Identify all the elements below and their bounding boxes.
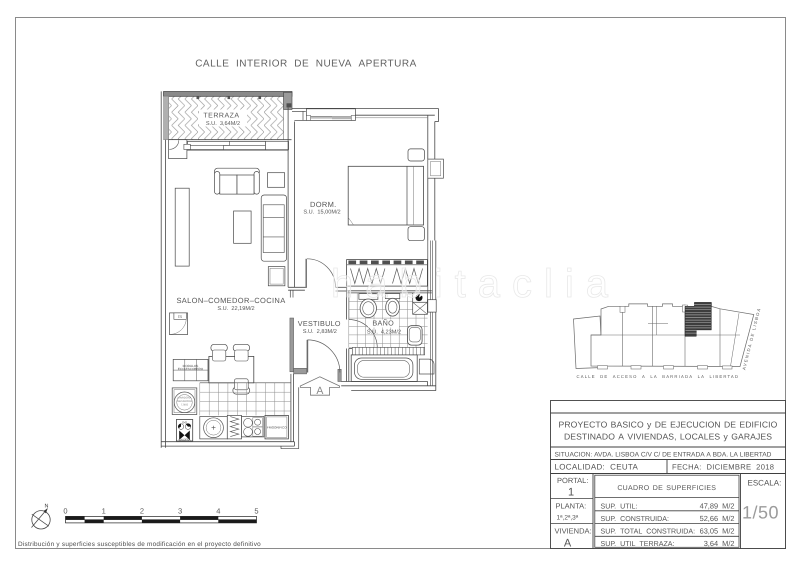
svg-text:DORM.: DORM. [310, 200, 337, 209]
svg-text:5: 5 [254, 507, 258, 516]
svg-text:SITUACION: AVDA. LISBOA C/V C/: SITUACION: AVDA. LISBOA C/V C/ DE ENTRAD… [555, 452, 772, 459]
svg-text:S.U. 15,00M/2: S.U. 15,00M/2 [303, 209, 340, 216]
svg-text:VIVIENDA:: VIVIENDA: [555, 527, 592, 536]
svg-text:63,05 M/2: 63,05 M/2 [700, 527, 735, 536]
svg-text:Distribución y superficies sus: Distribución y superficies susceptibles … [18, 541, 261, 548]
svg-text:SUP. TOTAL CONSTRUIDA:: SUP. TOTAL CONSTRUIDA: [601, 528, 696, 536]
svg-text:SUP. UTIL TERRAZA:: SUP. UTIL TERRAZA: [601, 540, 675, 548]
svg-text:SUP. UTIL:: SUP. UTIL: [601, 502, 638, 510]
svg-text:1/50: 1/50 [742, 503, 779, 523]
svg-text:3: 3 [178, 507, 182, 516]
svg-text:TERRAZA: TERRAZA [203, 113, 239, 120]
svg-text:S.U. 3,64M/2: S.U. 3,64M/2 [206, 120, 240, 127]
svg-text:CALDERA: CALDERA [179, 439, 191, 442]
svg-text:A: A [316, 385, 323, 397]
svg-text:7,5KG: 7,5KG [181, 404, 188, 407]
svg-text:N: N [45, 504, 49, 510]
svg-text:DESTINADO A VIVIENDAS, LOCALES: DESTINADO A VIVIENDAS, LOCALES y GARAJES [564, 432, 772, 442]
svg-text:1: 1 [568, 487, 574, 499]
svg-text:habitaclia: habitaclia [331, 262, 620, 306]
svg-text:52,66 M/2: 52,66 M/2 [700, 514, 735, 523]
svg-text:0: 0 [63, 507, 67, 516]
svg-text:S.U. 4,23M/2: S.U. 4,23M/2 [367, 328, 401, 335]
svg-text:SALON–COMEDOR–COCINA: SALON–COMEDOR–COCINA [176, 296, 285, 305]
svg-text:IS: IS [178, 314, 182, 319]
svg-text:4: 4 [216, 507, 220, 516]
svg-text:BAÑO: BAÑO [372, 319, 394, 328]
svg-text:VESTIBULO: VESTIBULO [298, 319, 341, 328]
svg-text:CALLE INTERIOR DE NUEVA AP: CALLE INTERIOR DE NUEVA APERTURA [195, 59, 417, 70]
svg-text:CALLE DE ACCESO A LA BARRIADA: CALLE DE ACCESO A LA BARRIADA LA LIBERTA… [577, 374, 740, 379]
svg-text:ESCALA:: ESCALA: [748, 479, 782, 488]
svg-text:S.U. 2,83M/2: S.U. 2,83M/2 [303, 328, 337, 335]
svg-text:FECHA: DICIEMBRE 2018: FECHA: DICIEMBRE 2018 [672, 463, 774, 472]
svg-text:PLANTA:: PLANTA: [556, 502, 587, 511]
svg-text:2: 2 [140, 507, 144, 516]
svg-text:FRIGORIFICO: FRIGORIFICO [267, 426, 287, 430]
svg-text:SUP. CONSTRUIDA:: SUP. CONSTRUIDA: [601, 515, 669, 523]
svg-text:A: A [564, 538, 572, 550]
svg-text:ECO-ESCOBERO: ECO-ESCOBERO [178, 367, 204, 371]
svg-text:1: 1 [102, 507, 106, 516]
svg-text:CUADRO DE SUPERFICIES: CUADRO DE SUPERFICIES [617, 485, 716, 492]
svg-text:PROYECTO BASICO y DE EJECUCION: PROYECTO BASICO y DE EJECUCION DE EDIFIC… [559, 420, 778, 430]
svg-text:47,89 M/2: 47,89 M/2 [700, 501, 735, 510]
svg-text:LOCALIDAD: CEUTA: LOCALIDAD: CEUTA [555, 463, 639, 472]
svg-text:1ª,2ª,3ª: 1ª,2ª,3ª [557, 515, 579, 522]
svg-text:S.U. 22,19M/2: S.U. 22,19M/2 [217, 305, 254, 312]
svg-text:3,64 M/2: 3,64 M/2 [704, 539, 735, 548]
svg-text:PORTAL:: PORTAL: [557, 476, 588, 485]
